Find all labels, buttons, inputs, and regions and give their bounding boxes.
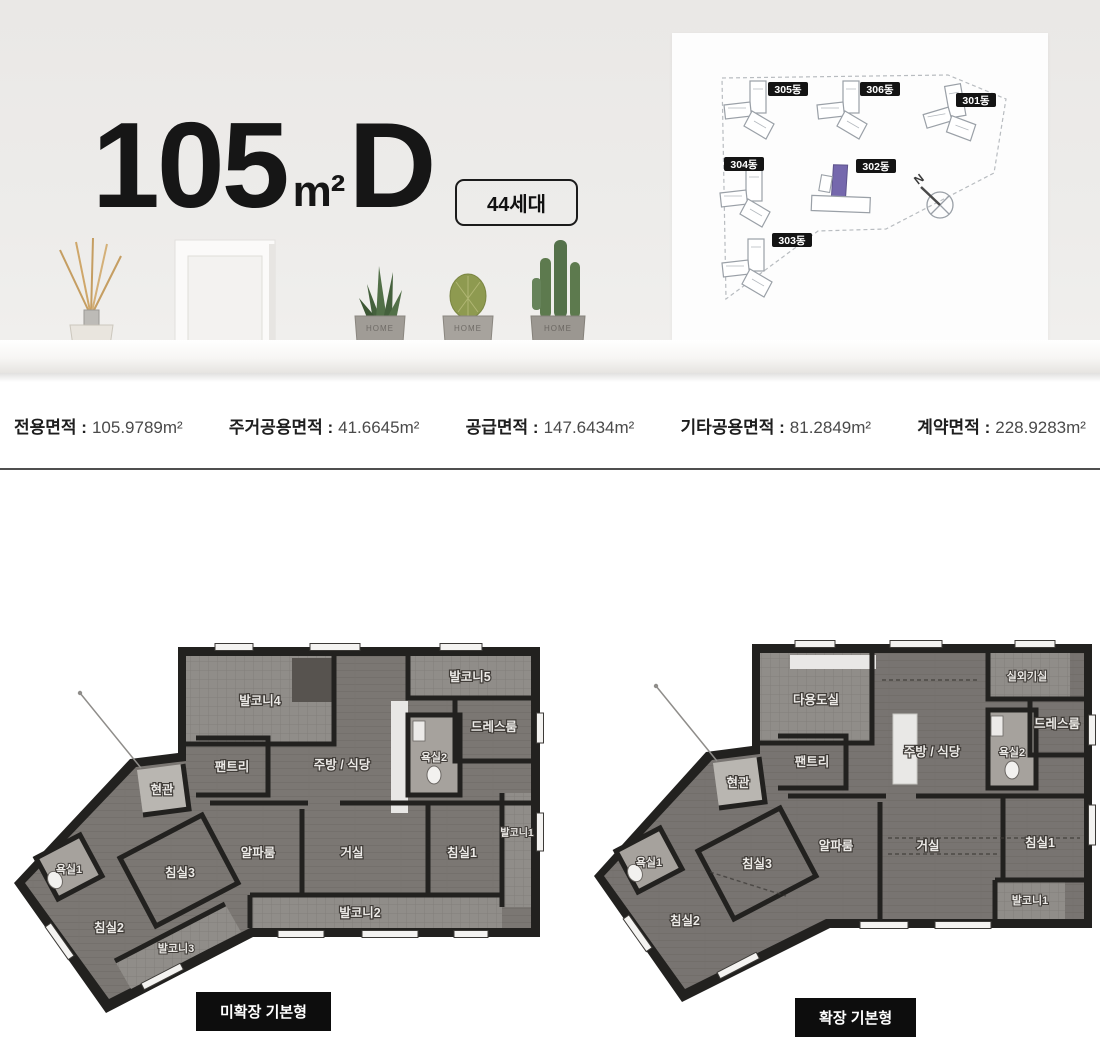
- entrance-pointer-line: [656, 686, 717, 761]
- room-label-alpha: 알파룸: [241, 845, 276, 860]
- room-label-living: 거실: [340, 845, 363, 860]
- floorplan-expanded: 다용도실 실외기실 드레스룸 팬트리 주방 / 식당 욕실2 현관 알파룸 거실…: [590, 640, 1100, 1005]
- building-304: [720, 169, 770, 227]
- toilet-icon: [1005, 761, 1019, 779]
- room-label-bed1: 침실1: [1025, 835, 1055, 850]
- entrance-pointer-line: [80, 693, 141, 768]
- room-label-entrance: 현관: [726, 775, 750, 790]
- sink-icon: [991, 716, 1003, 736]
- building-label-304: 304동: [730, 159, 758, 171]
- balcony1-area: [502, 793, 531, 907]
- room-label-bath1: 욕실1: [636, 855, 662, 869]
- compass-icon: N: [911, 171, 953, 218]
- room-label-balcony1: 발코니1: [1012, 893, 1048, 907]
- site-map: 305동 306동 301동 304동 302동 303동: [672, 33, 1048, 340]
- building-label-302: 302동: [862, 161, 890, 173]
- building-label-303: 303동: [778, 235, 806, 247]
- room-label-balcony1: 발코니1: [500, 826, 534, 839]
- room-label-bed3: 침실3: [165, 865, 195, 880]
- hero-section: 105 m² D 44세대: [0, 0, 1100, 373]
- spec-residential-common-area: 주거공용면적 :41.6645m²: [229, 413, 420, 438]
- room-label-acroom: 실외기실: [1007, 669, 1047, 683]
- room-label-bath2: 욕실2: [421, 750, 447, 764]
- shelf-shadow: [0, 373, 1100, 382]
- building-label-301: 301동: [962, 95, 990, 107]
- title-area-number: 105: [92, 118, 287, 213]
- room-label-utility: 다용도실: [793, 692, 839, 707]
- room-label-entrance: 현관: [150, 782, 174, 797]
- room-label-bath1: 욕실1: [56, 862, 82, 876]
- caption-expanded: 확장 기본형: [795, 998, 916, 1037]
- title-area-unit: m²: [287, 175, 349, 213]
- utility-counter: [790, 655, 876, 669]
- floorplan-unexpanded: 발코니4 발코니5 드레스룸 팬트리 주방 / 식당 욕실2 현관 발코니1 알…: [10, 643, 545, 1018]
- building-305: [724, 81, 774, 139]
- pot-label: HOME: [544, 324, 572, 333]
- room-label-balcony3: 발코니3: [158, 941, 194, 955]
- toilet-icon: [427, 766, 441, 784]
- compass-north-label: N: [911, 171, 926, 187]
- room-label-bath2: 욕실2: [999, 745, 1025, 759]
- room-label-bed3: 침실3: [742, 856, 772, 871]
- spec-exclusive-area: 전용면적 :105.9789m²: [14, 413, 183, 438]
- title-type-letter: D: [348, 118, 433, 213]
- area-specs: 전용면적 :105.9789m² 주거공용면적 :41.6645m² 공급면적 …: [0, 382, 1100, 468]
- building-label-306: 306동: [866, 84, 894, 96]
- caption-unexpanded: 미확장 기본형: [196, 992, 331, 1031]
- room-label-pantry: 팬트리: [795, 754, 830, 769]
- room-label-bed1: 침실1: [447, 845, 477, 860]
- room-label-bed2: 침실2: [94, 920, 124, 935]
- page: 105 m² D 44세대: [0, 0, 1100, 1050]
- room-label-kitchen: 주방 / 식당: [314, 757, 371, 772]
- room-label-living: 거실: [916, 838, 939, 853]
- entrance-pointer-dot: [78, 691, 82, 695]
- shelf: [0, 340, 1100, 373]
- entrance-pointer-dot: [654, 684, 658, 688]
- spec-other-common-area: 기타공용면적 :81.2849m²: [681, 413, 872, 438]
- pot-label: HOME: [454, 324, 482, 333]
- unit-type-title: 105 m² D: [92, 118, 433, 213]
- room-label-dressroom: 드레스룸: [471, 719, 518, 734]
- room-label-balcony5: 발코니5: [449, 669, 491, 684]
- kitchen-counter: [391, 701, 408, 813]
- room-label-balcony2: 발코니2: [339, 905, 381, 920]
- building-303: [722, 239, 772, 297]
- sink-icon: [413, 721, 425, 741]
- floorplans-section: 발코니4 발코니5 드레스룸 팬트리 주방 / 식당 욕실2 현관 발코니1 알…: [0, 470, 1100, 1050]
- building-label-305: 305동: [774, 84, 802, 96]
- building-306: [817, 81, 867, 139]
- room-label-balcony4: 발코니4: [239, 693, 281, 708]
- household-count-badge: 44세대: [455, 179, 578, 226]
- room-label-kitchen: 주방 / 식당: [904, 744, 961, 759]
- building-301: [919, 82, 978, 148]
- closet-block: [292, 658, 334, 702]
- room-label-dressroom: 드레스룸: [1034, 716, 1081, 731]
- room-label-alpha: 알파룸: [819, 838, 854, 853]
- spec-supply-area: 공급면적 :147.6434m²: [466, 413, 635, 438]
- pot-label: HOME: [366, 324, 394, 333]
- room-label-pantry: 팬트리: [215, 759, 250, 774]
- spec-contract-area: 계약면적 :228.9283m²: [917, 413, 1086, 438]
- room-label-bed2: 침실2: [670, 913, 700, 928]
